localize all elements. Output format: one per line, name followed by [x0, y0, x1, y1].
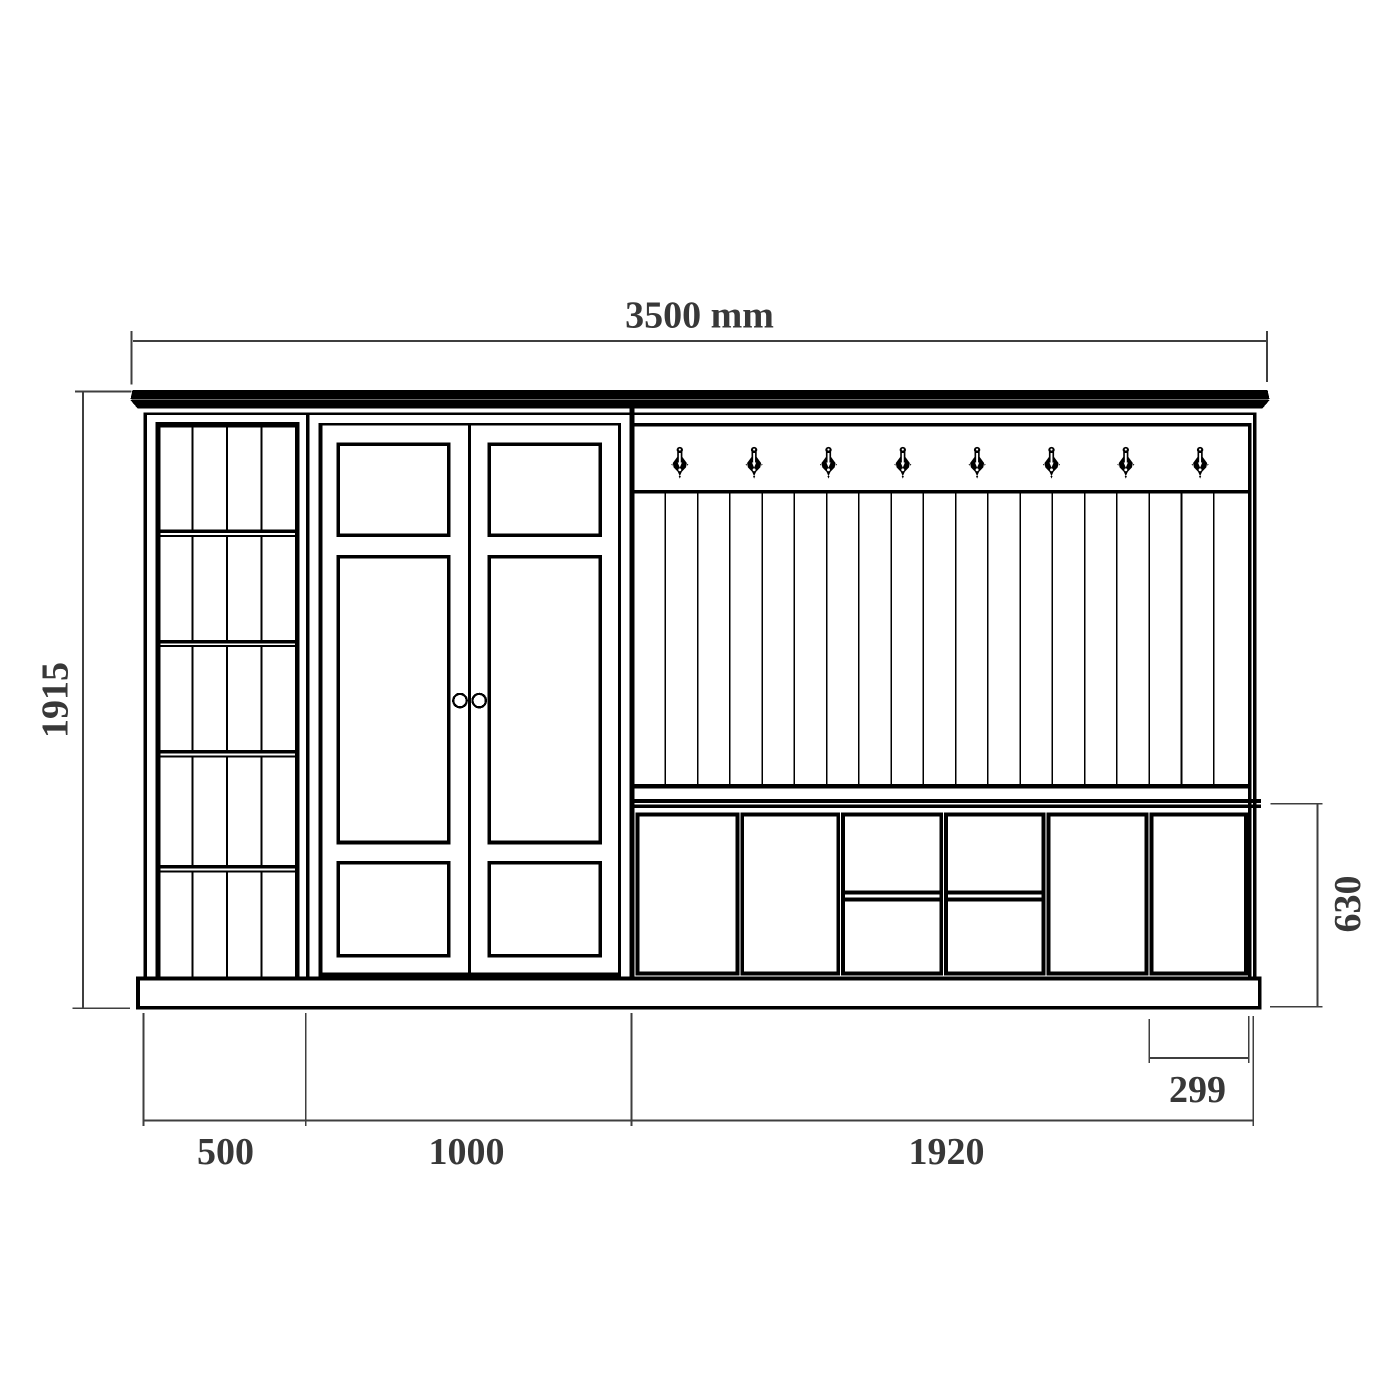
svg-text:3500 mm: 3500 mm — [625, 295, 774, 337]
svg-text:630: 630 — [1327, 876, 1369, 933]
svg-text:1915: 1915 — [35, 662, 77, 738]
svg-text:1920: 1920 — [909, 1131, 985, 1173]
svg-text:500: 500 — [197, 1131, 254, 1173]
svg-text:1000: 1000 — [429, 1131, 505, 1173]
svg-text:299: 299 — [1169, 1069, 1226, 1111]
